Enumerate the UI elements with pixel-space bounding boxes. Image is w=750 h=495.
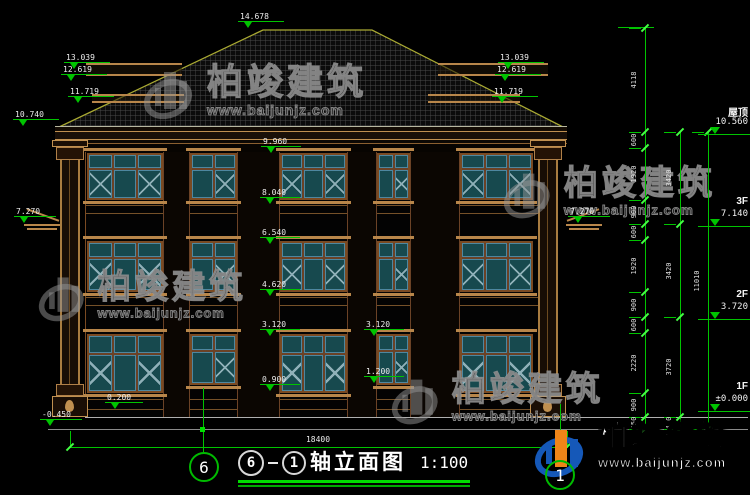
window-pane [215,170,236,198]
floor-label-elevation: 10.560 [700,117,748,127]
logo-bar-left [155,88,161,106]
logo-bar-left [402,395,408,412]
window [460,241,533,292]
dimension-ext-line [664,132,676,133]
watermark-website: www.baijunjz.com [98,306,247,319]
window-sill [373,201,414,204]
level-marker-triangle [67,75,75,81]
level-marker-triangle [19,120,27,126]
logo-bar-left [49,292,55,309]
watermark-text: 柏竣建筑www.baijunjz.com [598,422,730,469]
window-pane [114,170,137,198]
window-pane [138,336,161,353]
window-sill [456,293,537,296]
window-pane [192,336,213,350]
window-pane [114,155,137,168]
window-pane [379,259,393,290]
axis-grip [200,427,205,432]
window-pane [379,155,393,168]
column-capital [530,140,566,147]
window-pane [282,155,302,168]
side-ledge [27,228,57,230]
floor-label-elevation: 3.720 [700,302,748,312]
dimension-ext-line [664,224,676,225]
window [280,153,347,200]
watermark-website: www.baijunjz.com [207,103,367,117]
floor-label-line [698,134,750,135]
window [190,153,237,200]
level-marker-triangle [498,97,506,103]
logo-bar-right [179,81,187,109]
level-marker-triangle [111,403,119,409]
level-marker-triangle [266,290,274,296]
level-marker-triangle [501,75,509,81]
dimension-ext-line [629,28,641,29]
level-marker-value: 11.719 [70,87,99,96]
title-axis-end-bubble: 1 [282,451,306,475]
level-marker-triangle [266,330,274,336]
window-pane [325,243,345,257]
floor-label-triangle [710,219,720,226]
eave-cornice [55,126,567,144]
window [377,153,410,200]
window-sill [373,293,414,296]
logo-bar-right [570,439,578,467]
window-pane [462,259,484,290]
level-marker-value: 1.200 [366,367,390,376]
window-header [186,329,241,332]
window-pane [89,155,112,168]
watermark-logo-icon [143,64,197,126]
dimension-ext-line [664,317,676,318]
level-marker-value: 13.039 [500,53,529,62]
level-marker-value: 7.270 [16,207,40,216]
watermark-company: 柏竣建筑 [207,64,367,100]
level-marker-triangle [370,330,378,336]
watermark: 柏竣建筑www.baijunjz.com [38,270,246,328]
title-underline [238,480,470,483]
title-dash [268,462,278,464]
floor-label-triangle [710,127,720,134]
watermark-text: 柏竣建筑www.baijunjz.com [98,270,247,319]
window-pane [89,355,112,392]
window-pane [462,170,484,198]
window-pane [509,243,531,257]
window-sill [276,394,351,397]
column-capital-lower [56,147,84,160]
window-header [456,236,537,239]
level-marker-value: 3.120 [262,320,286,329]
axis-bubble-6-label: 6 [199,458,209,477]
level-marker-value: 0.900 [262,375,286,384]
level-marker-value: 11.719 [494,87,523,96]
level-marker-value: 4.620 [262,280,286,289]
window-pane [325,355,345,392]
window-sill [186,201,241,204]
level-marker-value: 7.270 [570,207,594,216]
logo-bar-center [58,277,69,311]
window-pane [192,155,213,168]
window-pane [325,170,345,198]
floor-label-line [698,319,750,320]
level-marker-triangle [20,217,28,223]
axis-bubble-1-label: 1 [555,466,565,485]
window-pane [509,259,531,290]
window-pane [325,259,345,290]
window-header [186,236,241,239]
title-scale: 1:100 [420,450,468,476]
title-axis-start-bubble: 6 [238,450,264,476]
floor-label-triangle [710,404,720,411]
floor-label-elevation: 7.140 [700,209,748,219]
window-sill [276,293,351,296]
window-pane [395,170,409,198]
window-pane [215,336,236,350]
floor-label-elevation: ±0.000 [700,394,748,404]
level-marker-triangle [46,420,54,426]
window-pane [325,155,345,168]
window-pane [138,243,161,257]
window-pane [395,336,409,350]
window-pane [282,355,302,392]
watermark-logo-icon [503,166,554,225]
watermark-logo-icon [38,270,88,328]
window-header [276,148,351,151]
window-pane [304,170,324,198]
window-header [373,236,414,239]
window-pane [89,336,112,353]
logo-bar-center [411,380,422,415]
level-marker-value: 6.540 [262,228,286,237]
column-capital [52,140,88,147]
floor-label-line [698,411,750,412]
watermark-company: 柏竣建筑 [98,270,247,303]
logo-bar-center [164,72,176,109]
side-ledge [24,224,60,226]
watermark-text: 柏竣建筑www.baijunjz.com [207,64,367,117]
window-pane [304,155,324,168]
title-name: 轴立面图 [310,450,406,476]
window [190,334,237,385]
window-pane [138,155,161,168]
dimension-ext-line [692,132,704,133]
window-pane [304,243,324,257]
dimension-line [680,132,681,429]
wall-course-line [86,205,544,206]
window [280,241,347,292]
side-ledge [569,228,599,230]
window-pane [486,259,508,290]
window-pane [282,243,302,257]
window-pane [462,155,484,168]
logo-bar-right [537,182,545,209]
window-header [83,236,167,239]
level-marker-triangle [74,97,82,103]
logo-bar-center [523,174,534,209]
window-pane [325,336,345,353]
window [377,241,410,292]
window-pane [89,170,112,198]
window-pane [379,170,393,198]
logo-bar-left [514,189,520,206]
floor-label-name: 2F [700,289,748,300]
dimension-line [645,28,646,429]
floor-label-name: 3F [700,196,748,207]
window [87,153,163,200]
axis-line-6 [203,388,204,452]
level-marker-triangle [266,198,274,204]
level-marker-value: 10.740 [15,110,44,119]
window-pane [304,355,324,392]
watermark-company: 柏竣建筑 [452,372,604,406]
window-sill [186,386,241,389]
window-pane [138,355,161,392]
window-pane [114,355,137,392]
cad-elevation-drawing: 6 1 轴立面图 1:100 18400 6 1 14.67813.03912.… [0,0,750,495]
window-sill [83,201,167,204]
window-pane [114,336,137,353]
window-header [83,148,167,151]
window-pane [215,352,236,383]
level-marker-triangle [244,22,252,28]
window-pane [282,336,302,353]
level-marker-value: 3.120 [366,320,390,329]
window-pane [509,336,531,353]
window-pane [395,243,409,257]
window-pane [486,336,508,353]
window-sill [276,201,351,204]
floor-label-line [698,226,750,227]
dimension-value: 4118 [630,50,640,110]
watermark-company: 柏竣建筑 [598,422,730,452]
window-pane [114,243,137,257]
level-marker-value: 14.678 [240,12,269,21]
drawing-title: 6 1 轴立面图 1:100 [238,450,468,476]
window [87,334,163,393]
logo-bar-right [71,286,78,312]
axis-bubble-6: 6 [189,452,219,482]
dimension-value: 3420 [665,148,675,208]
dimension-value: 3420 [665,241,675,301]
level-marker-value: 13.039 [66,53,95,62]
floor-label-name: 1F [700,381,748,392]
bottom-dimension-line [70,447,568,448]
watermark-text: 柏竣建筑www.baijunjz.com [452,372,604,422]
title-underline-2 [238,485,470,487]
total-width-dimension: 18400 [288,435,348,444]
window-header [456,148,537,151]
watermark: 柏竣建筑www.baijunjz.com [143,64,367,126]
window-header [186,148,241,151]
window-pane [138,170,161,198]
window-pane [89,243,112,257]
window-pane [215,243,236,257]
level-marker-value: 12.619 [497,65,526,74]
column-capital-lower [534,147,562,160]
axis-bubble-1: 1 [545,460,575,490]
title-axis-start: 6 [247,455,255,471]
window-header [456,329,537,332]
dimension-value: 3720 [665,337,675,397]
column-base [56,384,84,396]
window-header [373,148,414,151]
window-pane [192,352,213,383]
watermark-website: www.baijunjz.com [598,456,730,469]
window-pane [215,155,236,168]
level-marker-triangle [370,377,378,383]
window-pane [462,336,484,353]
window-pane [462,243,484,257]
window-pane [304,336,324,353]
title-axis-end: 1 [290,455,298,471]
level-marker-triangle [574,217,582,223]
wall-course-line [86,213,544,214]
watermark-website: www.baijunjz.com [452,409,604,422]
level-marker-triangle [267,147,275,153]
level-marker-value: -0.450 [42,410,71,419]
level-marker-triangle [266,385,274,391]
window-pane [486,243,508,257]
window-pane [379,336,393,350]
window-pane [379,243,393,257]
level-marker-value: 12.619 [63,65,92,74]
window-pane [304,259,324,290]
window-pane [192,170,213,198]
level-marker-triangle [266,238,274,244]
floor-label-triangle [710,312,720,319]
window-pane [192,243,213,257]
level-marker-value: 9.960 [263,137,287,146]
window-header [83,329,167,332]
watermark-logo-icon [391,372,442,431]
logo-bar-right [425,388,433,415]
level-marker-value: 0.200 [107,393,131,402]
window-pane [395,259,409,290]
window-pane [395,155,409,168]
level-marker-value: 8.040 [262,188,286,197]
